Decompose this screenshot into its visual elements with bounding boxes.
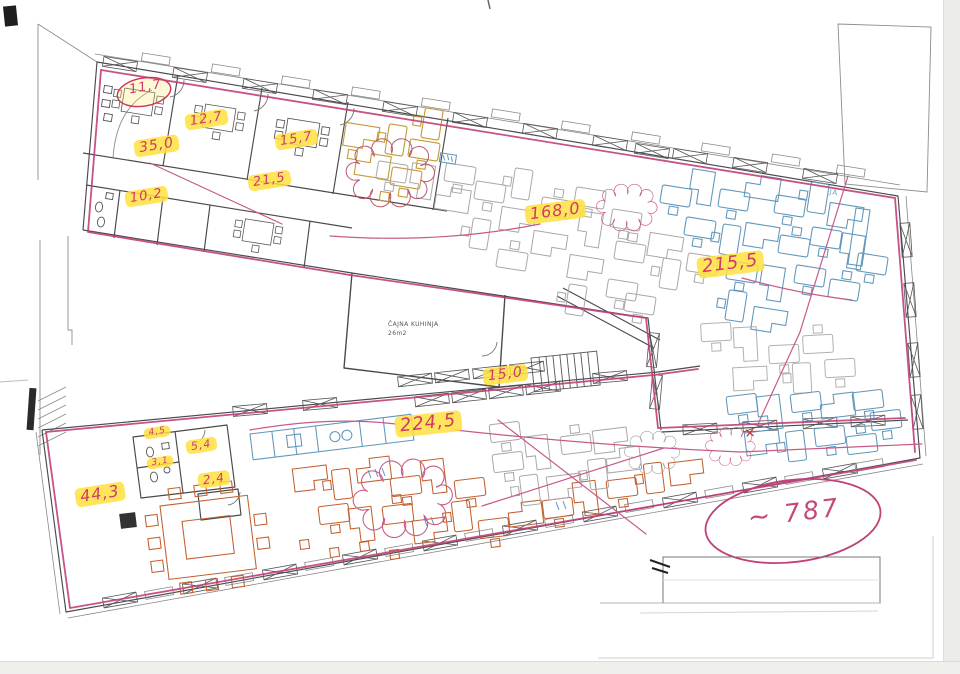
sketch-pencil-desks-bottom [489,421,642,507]
scan-artifacts [0,0,490,430]
floorplan-drawing [0,0,960,674]
side-note: JA [829,189,839,198]
total-value: 787 [782,493,842,529]
scan-page-edge-bottom [0,661,960,674]
printed-furniture [95,85,330,529]
scan-page-edge-right [943,0,960,674]
sketch-blue-desks-right [658,169,888,335]
title-block [598,536,933,658]
kitchen-room-label: ČAJNA KUHINJA 26m2 [388,320,438,338]
x-mark: ✕ [744,427,757,442]
scanned-floorplan-page: 11,7 12,7 15,7 35,0 10,2 21,5 168,0 215,… [0,0,960,674]
sketch-pencil-desks-right [701,322,856,394]
kitchen-room-area: 26m2 [388,329,438,338]
total-approx-symbol: ~ [746,500,772,534]
kitchen-room-name: ČAJNA KUHINJA [388,320,438,329]
